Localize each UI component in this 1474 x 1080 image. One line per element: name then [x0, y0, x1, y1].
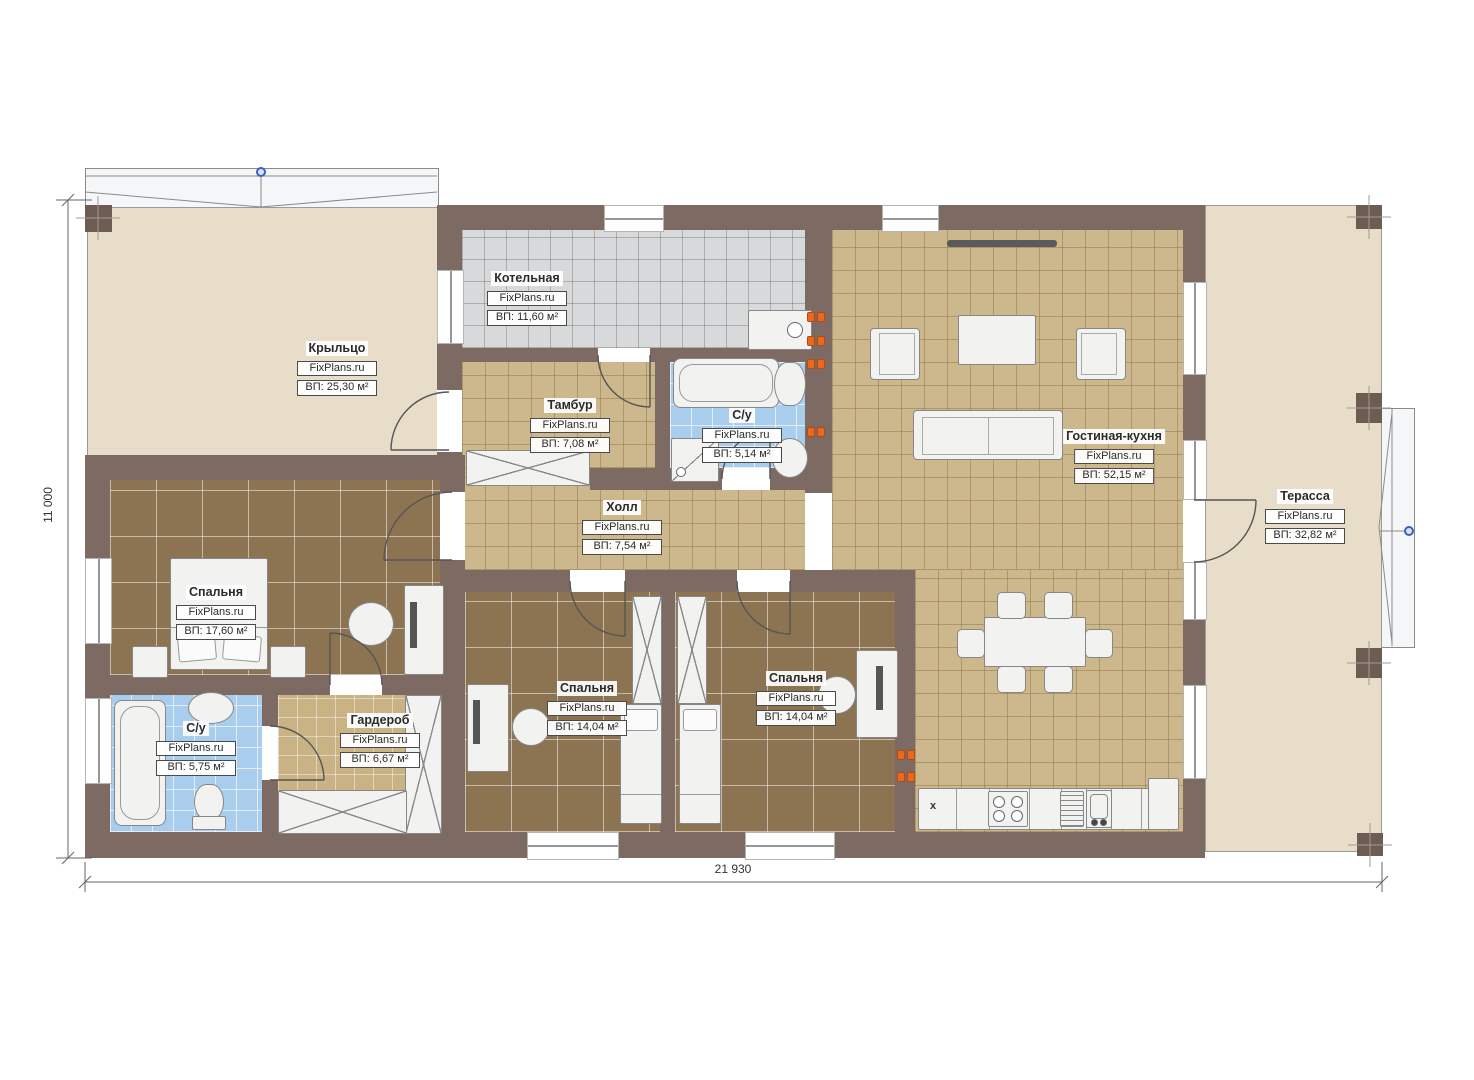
- dining-chair: [1044, 666, 1073, 693]
- room-label-bedroom1: Спальня FixPlans.ru ВП: 17,60 м²: [176, 582, 256, 640]
- window-living-right1: [1183, 282, 1207, 375]
- room-area: ВП: 25,30 м²: [297, 380, 377, 395]
- watermark: FixPlans.ru: [340, 733, 420, 748]
- room-name: Холл: [603, 500, 640, 515]
- wall-bottom: [85, 832, 1205, 858]
- terrace-post-top: [1356, 205, 1382, 229]
- terrace-post-mid1: [1356, 393, 1382, 423]
- room-name: Гардероб: [347, 713, 412, 728]
- room-name: Терасса: [1277, 489, 1333, 504]
- roof-handle-node[interactable]: [256, 167, 266, 177]
- room-area: ВП: 5,14 м²: [702, 447, 782, 462]
- dining-chair: [1044, 592, 1073, 619]
- room-name: Гостиная-кухня: [1063, 429, 1165, 444]
- kitchen-counter-corner: [1148, 778, 1179, 830]
- nightstand: [132, 646, 168, 678]
- room-label-wardrobe: Гардероб FixPlans.ru ВП: 6,67 м²: [340, 710, 420, 768]
- porch-post: [85, 205, 112, 232]
- armchair-left: [870, 328, 920, 380]
- room-area: ВП: 17,60 м²: [176, 624, 256, 639]
- window-living-top: [882, 205, 939, 232]
- dining-table: [984, 617, 1086, 667]
- coffee-table: [958, 315, 1036, 365]
- office-chair: [512, 708, 550, 746]
- porch-floor: [87, 207, 439, 457]
- tv: [947, 240, 1057, 247]
- bathtub: [673, 358, 779, 408]
- stove-icon: [988, 791, 1028, 827]
- toilet-tank: [192, 816, 226, 830]
- terrace-post-mid2: [1356, 648, 1382, 678]
- sofa: [913, 410, 1063, 460]
- dining-chair: [1085, 629, 1113, 658]
- monitor-icon: [410, 602, 417, 648]
- room-area: ВП: 11,60 м²: [487, 310, 567, 325]
- window-bedroom1-left: [85, 558, 112, 644]
- door-opening-terrace: [1183, 500, 1205, 562]
- room-label-living: Гостиная-кухня FixPlans.ru ВП: 52,15 м²: [1063, 426, 1165, 484]
- room-label-hall: Холл FixPlans.ru ВП: 7,54 м²: [582, 497, 662, 555]
- door-opening-bath2: [262, 726, 278, 780]
- room-area: ВП: 7,08 м²: [530, 437, 610, 452]
- room-label-bedroom2: Спальня FixPlans.ru ВП: 14,04 м²: [547, 678, 627, 736]
- window-bedroom2-bottom: [527, 832, 619, 860]
- socket-marker: [897, 750, 915, 760]
- window-bath2-left: [85, 698, 112, 784]
- room-label-boiler: Котельная FixPlans.ru ВП: 11,60 м²: [487, 268, 567, 326]
- wall-top: [437, 205, 1205, 230]
- room-label-terrace: Терасса FixPlans.ru ВП: 32,82 м²: [1265, 486, 1345, 544]
- room-label-bathroom2: С/у FixPlans.ru ВП: 5,75 м²: [156, 718, 236, 776]
- wardrobe-cabinet: [278, 790, 407, 834]
- watermark: FixPlans.ru: [547, 701, 627, 716]
- door-opening-porch: [437, 390, 462, 452]
- dining-chair: [997, 666, 1026, 693]
- window-living-right3: [1183, 562, 1207, 620]
- wardrobe-cabinet: [677, 596, 707, 704]
- door-opening-bedroom1: [440, 492, 465, 560]
- socket-marker: [807, 427, 825, 437]
- room-area: ВП: 6,67 м²: [340, 752, 420, 767]
- room-name: Спальня: [557, 681, 617, 696]
- door-opening-bedroom3: [737, 570, 790, 592]
- watermark: FixPlans.ru: [756, 691, 836, 706]
- window-living-right2: [1183, 440, 1207, 500]
- kitchen-counter: [918, 788, 1177, 830]
- watermark: FixPlans.ru: [1265, 509, 1345, 524]
- wall-tambour-bath: [655, 362, 670, 468]
- terrace-post-bottom: [1357, 833, 1383, 856]
- window-boiler-top: [604, 205, 664, 232]
- socket-marker: [807, 336, 825, 346]
- nightstand: [270, 646, 306, 678]
- toilet-icon: [774, 362, 806, 406]
- opening-hall-living: [805, 493, 832, 570]
- room-area: ВП: 5,75 м²: [156, 760, 236, 775]
- watermark: FixPlans.ru: [297, 361, 377, 376]
- room-area: ВП: 14,04 м²: [547, 720, 627, 735]
- watermark: FixPlans.ru: [702, 428, 782, 443]
- door-opening-bedroom2: [570, 570, 625, 592]
- office-chair: [348, 602, 394, 646]
- window-boiler-left: [437, 270, 464, 344]
- room-name: Котельная: [491, 271, 562, 286]
- floor-plan-canvas: x: [0, 0, 1474, 1080]
- room-label-bathroom1: С/у FixPlans.ru ВП: 5,14 м²: [702, 405, 782, 463]
- watermark: FixPlans.ru: [530, 418, 610, 433]
- boiler-dial: [787, 322, 803, 338]
- roof-handle-node[interactable]: [1404, 526, 1414, 536]
- wall-bedroom3-right: [895, 570, 915, 832]
- room-name: Спальня: [186, 585, 246, 600]
- dining-chair: [997, 592, 1026, 619]
- room-name: Спальня: [766, 671, 826, 686]
- watermark: FixPlans.ru: [1074, 449, 1154, 464]
- wall-bedroom1-bottom: [110, 675, 440, 695]
- room-label-bedroom3: Спальня FixPlans.ru ВП: 14,04 м²: [756, 668, 836, 726]
- wall-porch-bottom: [85, 455, 465, 480]
- watermark: FixPlans.ru: [487, 291, 567, 306]
- room-area: ВП: 32,82 м²: [1265, 528, 1345, 543]
- armchair-right: [1076, 328, 1126, 380]
- dimension-height: 11 000: [41, 475, 55, 535]
- kitchen-sink-icon: [1086, 790, 1112, 828]
- room-label-tambour: Тамбур FixPlans.ru ВП: 7,08 м²: [530, 395, 610, 453]
- dishwasher-icon: [1060, 791, 1084, 827]
- socket-marker: [807, 312, 825, 322]
- watermark: FixPlans.ru: [156, 741, 236, 756]
- room-name: Крыльцо: [306, 341, 369, 356]
- door-opening-bath1: [722, 468, 770, 490]
- room-area: ВП: 14,04 м²: [756, 710, 836, 725]
- wall-bedrooms-top: [440, 570, 915, 592]
- room-name: С/у: [729, 408, 754, 423]
- door-opening-boiler: [598, 348, 650, 362]
- boiler-unit: [748, 310, 812, 350]
- monitor-icon: [473, 700, 480, 744]
- room-label-porch: Крыльцо FixPlans.ru ВП: 25,30 м²: [297, 338, 377, 396]
- single-bed: [679, 704, 721, 824]
- window-bedroom3-bottom: [745, 832, 835, 860]
- room-area: ВП: 7,54 м²: [582, 539, 662, 554]
- room-name: С/у: [183, 721, 208, 736]
- window-living-right4: [1183, 685, 1207, 779]
- room-area: ВП: 52,15 м²: [1074, 468, 1154, 483]
- watermark: FixPlans.ru: [582, 520, 662, 535]
- dimension-width: 21 930: [715, 862, 752, 876]
- dining-chair: [957, 629, 985, 658]
- living-floor-upper: [832, 230, 1183, 570]
- toilet-icon: [194, 784, 224, 820]
- tambour-wardrobe: [466, 450, 590, 486]
- door-opening-wardrobe: [330, 675, 382, 695]
- socket-marker: [897, 772, 915, 782]
- watermark: FixPlans.ru: [176, 605, 256, 620]
- wall-bedrooms-center: [660, 592, 675, 832]
- wardrobe-cabinet: [632, 596, 662, 704]
- socket-marker: [807, 359, 825, 369]
- room-name: Тамбур: [544, 398, 595, 413]
- monitor-icon: [876, 666, 883, 710]
- counter-x-marker: x: [930, 800, 936, 812]
